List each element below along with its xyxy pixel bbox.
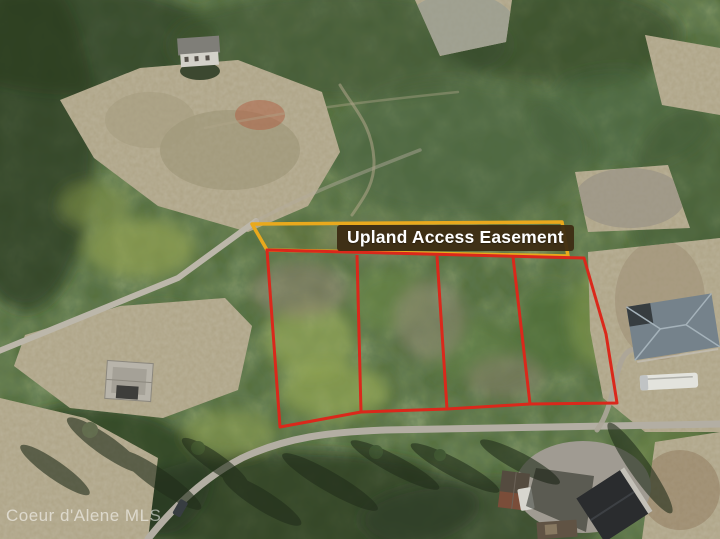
aerial-photo bbox=[0, 0, 720, 539]
haze bbox=[0, 0, 720, 539]
easement-label: Upland Access Easement bbox=[337, 225, 574, 251]
mls-watermark: Coeur d'Alene MLS bbox=[6, 506, 161, 526]
listing-photo: Upland Access Easement Coeur d'Alene MLS bbox=[0, 0, 720, 539]
